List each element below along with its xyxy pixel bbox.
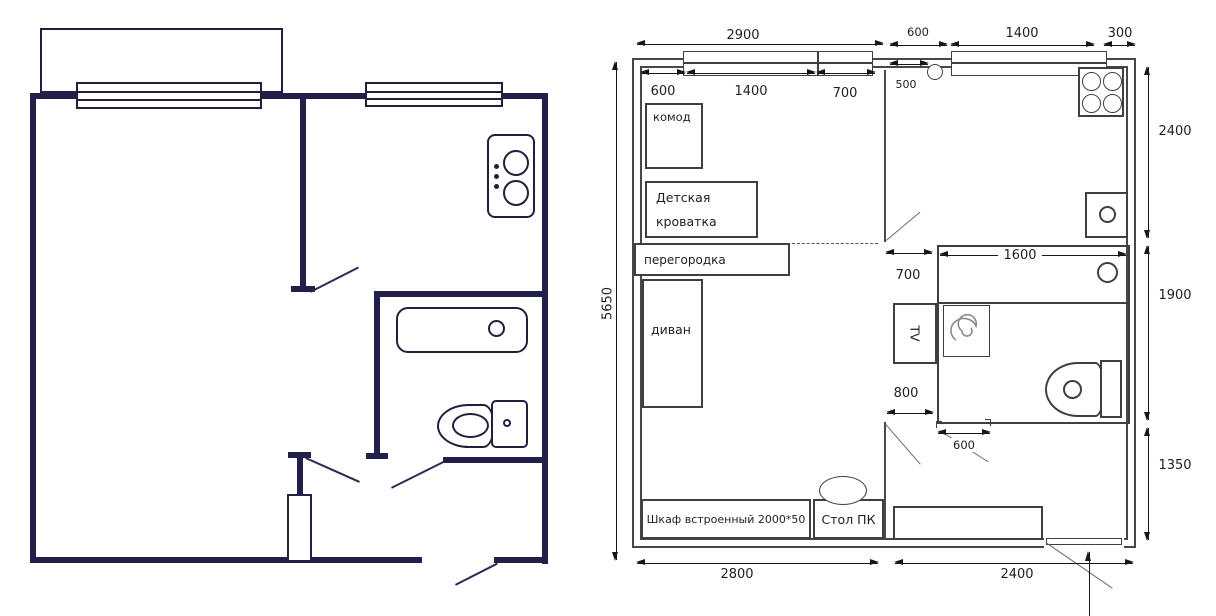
stove-burner	[1082, 72, 1101, 91]
dim-line-hall-width	[895, 563, 1133, 564]
dim-label-top-seg2: 1400	[726, 84, 776, 99]
pc-desk-label: Стол ПК	[822, 512, 876, 527]
crib-label-line2: кроватка	[656, 214, 717, 229]
crib-label-line1: Детская	[656, 190, 710, 205]
dim-label-top-total: 2900	[718, 28, 768, 43]
dim-line-kitchen-seg3	[1104, 45, 1135, 46]
dim-label-kitchen-seg3: 300	[1097, 26, 1143, 41]
washing-machine-icon	[943, 305, 990, 357]
toilet-tank-icon	[1100, 360, 1122, 418]
dim-label-top-seg3: 700	[820, 86, 870, 101]
dim-line-top-seg2	[687, 73, 815, 74]
wall-room-kitchen-divider	[884, 70, 886, 242]
dim-label-bath-door: 600	[944, 438, 984, 452]
dim-label-bath-depth: 1900	[1152, 288, 1198, 303]
dim-line-riser	[890, 64, 928, 65]
dim-label-passage-top: 700	[886, 268, 930, 283]
chair-icon	[819, 476, 867, 505]
dim-line-kitchen-depth	[1148, 67, 1149, 238]
kitchen-stove-icon	[1078, 67, 1124, 117]
stove-burner	[1103, 72, 1122, 91]
dim-line-bath-door	[938, 433, 990, 434]
dim-label-top-seg1: 600	[638, 84, 688, 99]
dim-line-passage-bottom	[887, 413, 933, 414]
washing-machine-drum	[944, 306, 988, 354]
toilet-bowl-drain	[1063, 380, 1082, 399]
dim-line-top-seg1	[641, 73, 685, 74]
dim-label-room-width: 2800	[712, 567, 762, 582]
washbasin-icon	[1097, 262, 1118, 283]
dim-label-riser: 500	[885, 78, 927, 91]
wall-hall-divider	[884, 422, 886, 540]
partition-dashed-line	[792, 243, 878, 244]
partition-box: перегородка	[634, 243, 790, 276]
dim-label-bath-width: 1600	[998, 248, 1042, 263]
crib-box: Детская кроватка	[645, 181, 758, 238]
dim-line-kitchen-seg1	[890, 45, 947, 46]
window-pane-line	[952, 62, 1106, 64]
partition-label: перегородка	[644, 253, 726, 267]
kitchen-sink-icon	[1085, 192, 1128, 238]
floor-plans-canvas: комод Детская кроватка перегородка диван…	[0, 0, 1216, 616]
dim-label-height-total: 5650	[601, 276, 616, 332]
door-jamb-mark	[985, 419, 991, 426]
dresser-label: комод	[653, 110, 691, 124]
tv-stand-box: TV	[893, 303, 937, 364]
dim-line-kitchen-seg2	[951, 45, 1094, 46]
dresser-box: комод	[645, 103, 703, 169]
dim-line-top-seg3	[817, 73, 875, 74]
sofa-label: диван	[651, 322, 691, 337]
dim-line-top-total	[637, 44, 883, 45]
wardrobe-label: Шкаф встроенный 2000*50	[647, 513, 806, 526]
dim-label-kitchen-depth: 2400	[1152, 124, 1198, 139]
dim-line-room-width	[637, 563, 878, 564]
wardrobe-box: Шкаф встроенный 2000*50	[641, 499, 811, 539]
dim-label-hall-depth: 1350	[1152, 458, 1198, 473]
hall-bench-box	[893, 506, 1043, 540]
kitchen-sink-drain	[1099, 206, 1116, 223]
dim-line-height-total	[616, 62, 617, 560]
entrance-door-sill	[1046, 538, 1122, 545]
pc-desk-box: Стол ПК	[813, 499, 884, 539]
pipe-riser-icon	[927, 64, 943, 80]
dim-label-hall-width: 2400	[992, 567, 1042, 582]
dim-label-passage-bottom: 800	[884, 386, 928, 401]
dim-label-kitchen-seg2: 1400	[997, 26, 1047, 41]
sofa-box: диван	[642, 279, 703, 408]
dim-label-kitchen-seg1: 600	[895, 25, 941, 39]
bathroom-divider-line	[937, 302, 1130, 304]
dim-line-passage-top	[886, 253, 932, 254]
dim-line-bath-depth	[1148, 246, 1149, 420]
dim-line-hall-depth	[1148, 428, 1149, 540]
entrance-direction-arrow	[1089, 552, 1090, 616]
door-jamb-mark	[936, 421, 942, 428]
right-floor-plan: комод Детская кроватка перегородка диван…	[0, 0, 1216, 616]
tv-label: TV	[908, 325, 923, 341]
stove-burner	[1103, 94, 1122, 113]
stove-burner	[1082, 94, 1101, 113]
window-pane-line	[684, 62, 872, 64]
